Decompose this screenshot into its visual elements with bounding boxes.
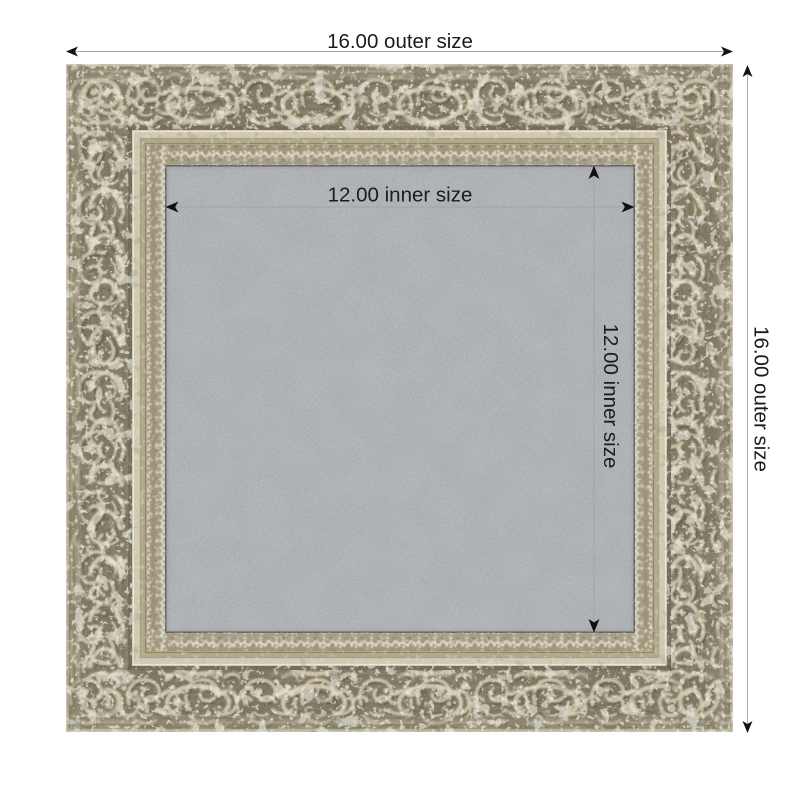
svg-text:16.00 outer size: 16.00 outer size: [750, 326, 773, 472]
svg-text:12.00 inner size: 12.00 inner size: [328, 184, 473, 207]
svg-text:16.00 outer size: 16.00 outer size: [327, 30, 473, 53]
svg-text:12.00 inner size: 12.00 inner size: [599, 324, 622, 469]
